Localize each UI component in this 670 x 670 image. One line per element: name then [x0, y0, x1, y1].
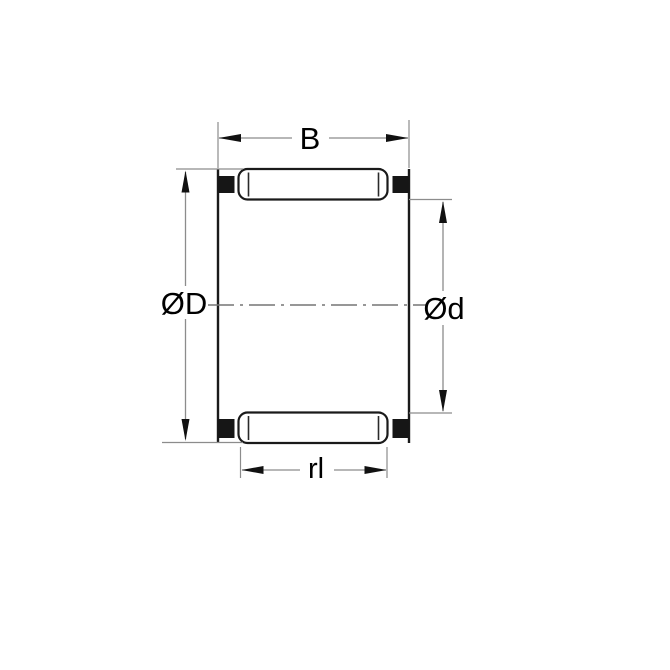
od-arrow-up	[182, 171, 190, 193]
cage-block-top-left	[218, 176, 235, 193]
inner-diameter-label: Ød	[423, 291, 464, 326]
outer-diameter-label: ØD	[161, 286, 208, 321]
b-arrow-right	[386, 134, 409, 142]
cage-block-bottom-left	[218, 419, 235, 438]
bearing-drawing-canvas: B ØD Ød	[0, 0, 670, 670]
dimension-roller-length: rl	[241, 447, 388, 485]
bearing-outline	[218, 169, 409, 443]
dimension-inner-diameter: Ød	[409, 200, 465, 414]
id-arrow-down	[439, 390, 447, 412]
roller-length-label: rl	[308, 453, 324, 485]
cage-sections	[218, 176, 409, 438]
needle-bearing-cross-section-drawing: B ØD Ød	[0, 0, 670, 670]
width-label: B	[300, 121, 321, 156]
cage-block-top-right	[393, 176, 410, 193]
b-arrow-left	[219, 134, 242, 142]
rl-arrow-right	[365, 466, 387, 474]
od-arrow-down	[182, 419, 190, 441]
id-arrow-up	[439, 201, 447, 223]
dimension-width-B: B	[218, 120, 409, 168]
bottom-needle-roller	[239, 413, 388, 444]
bottom-roller-body	[239, 413, 388, 444]
top-needle-roller	[239, 169, 388, 200]
top-roller-body	[239, 169, 388, 200]
rl-arrow-left	[242, 466, 264, 474]
cage-block-bottom-right	[393, 419, 410, 438]
